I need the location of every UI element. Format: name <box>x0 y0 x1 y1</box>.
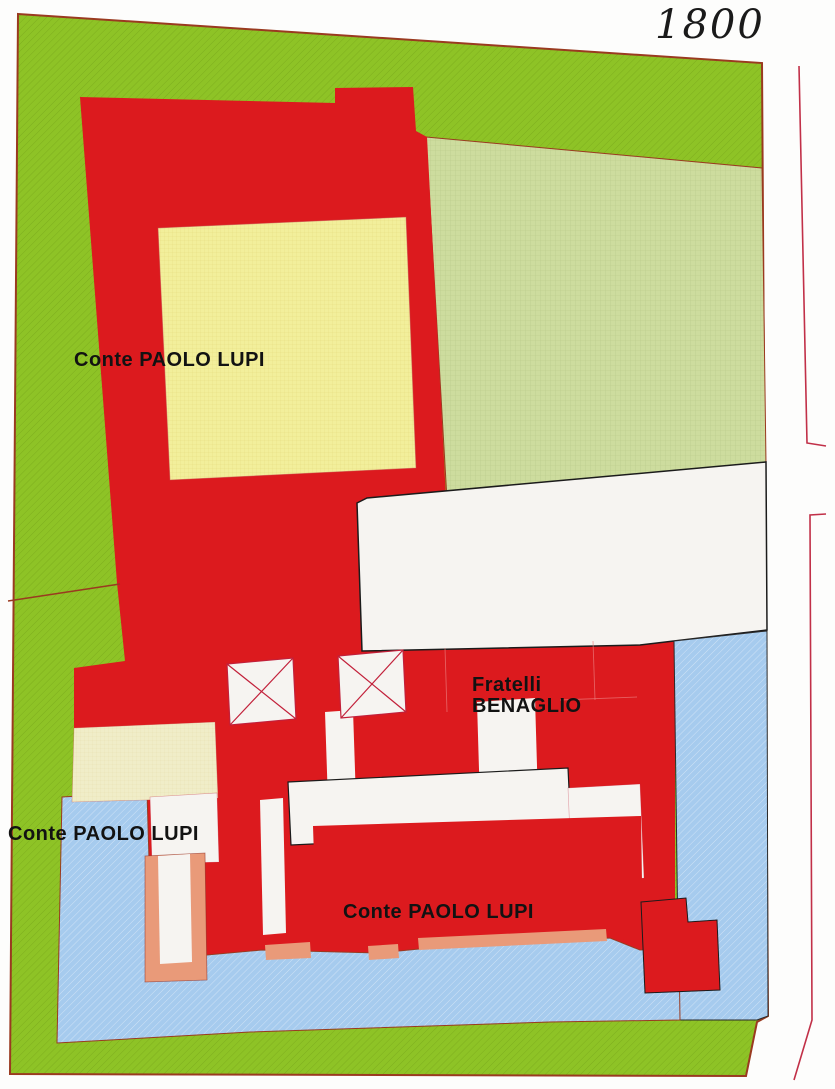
crossed-courtyard-box-2 <box>338 650 406 718</box>
annotation-bracket-upper <box>799 66 826 446</box>
region-field-pale-green <box>426 137 766 517</box>
owner-label-upper-conte-paolo-lupi: Conte PAOLO LUPI <box>74 350 265 371</box>
historical-map-page: 1800 Conte PAOLO LUPI FratelliBENAGLIO C… <box>0 0 835 1089</box>
owner-label-benaglio-line2: BENAGLIO <box>472 695 582 717</box>
owner-label-left-conte-paolo-lupi: Conte PAOLO LUPI <box>8 824 199 845</box>
region-garden-cream <box>72 722 218 802</box>
map-year-title: 1800 <box>655 2 765 48</box>
cadastral-map-canvas <box>0 0 835 1089</box>
courtyard-white-b <box>260 798 286 935</box>
crossed-courtyard-box-1 <box>227 658 296 725</box>
owner-label-fratelli-line1: Fratelli <box>472 674 542 696</box>
wall-salmon-u-inner-white <box>158 854 192 964</box>
annotation-bracket-lower <box>794 514 826 1080</box>
wall-salmon-strip-small-1 <box>265 942 311 960</box>
owner-label-bottom-conte-paolo-lupi: Conte PAOLO LUPI <box>343 902 534 923</box>
owner-label-fratelli-benaglio: FratelliBENAGLIO <box>472 675 582 717</box>
wall-salmon-strip-small-2 <box>368 944 399 960</box>
